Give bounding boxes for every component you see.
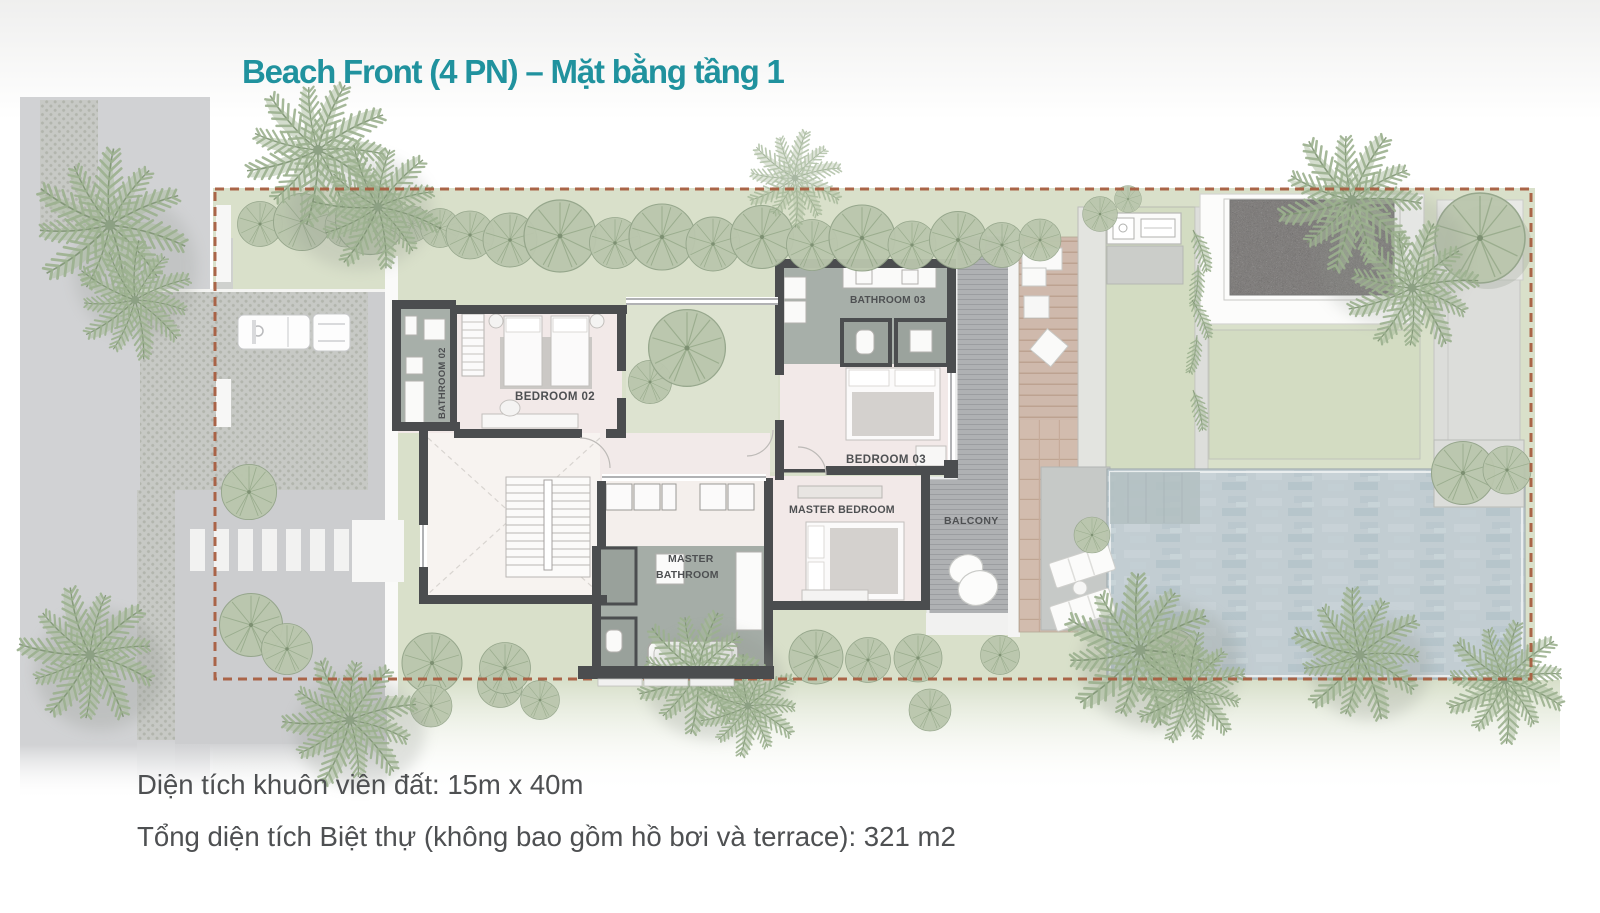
svg-text:BATHROOM 03: BATHROOM 03 (850, 295, 926, 306)
svg-text:BEDROOM 02: BEDROOM 02 (515, 391, 595, 403)
svg-text:Tổng diện tích Biệt thự (không: Tổng diện tích Biệt thự (không bao gồm h… (137, 821, 956, 852)
svg-text:BEDROOM 03: BEDROOM 03 (846, 454, 926, 466)
svg-text:MASTER BEDROOM: MASTER BEDROOM (789, 504, 895, 516)
svg-text:BALCONY: BALCONY (944, 515, 999, 527)
svg-text:BATHROOM 02: BATHROOM 02 (437, 347, 448, 419)
svg-text:Diện tích khuôn viên đất: 15m: Diện tích khuôn viên đất: 15m x 40m (137, 769, 583, 800)
svg-text:BATHROOM: BATHROOM (656, 569, 719, 581)
svg-text:MASTER: MASTER (668, 553, 714, 565)
svg-text:Beach Front (4 PN) – Mặt bằng: Beach Front (4 PN) – Mặt bằng tầng 1 (242, 53, 785, 90)
